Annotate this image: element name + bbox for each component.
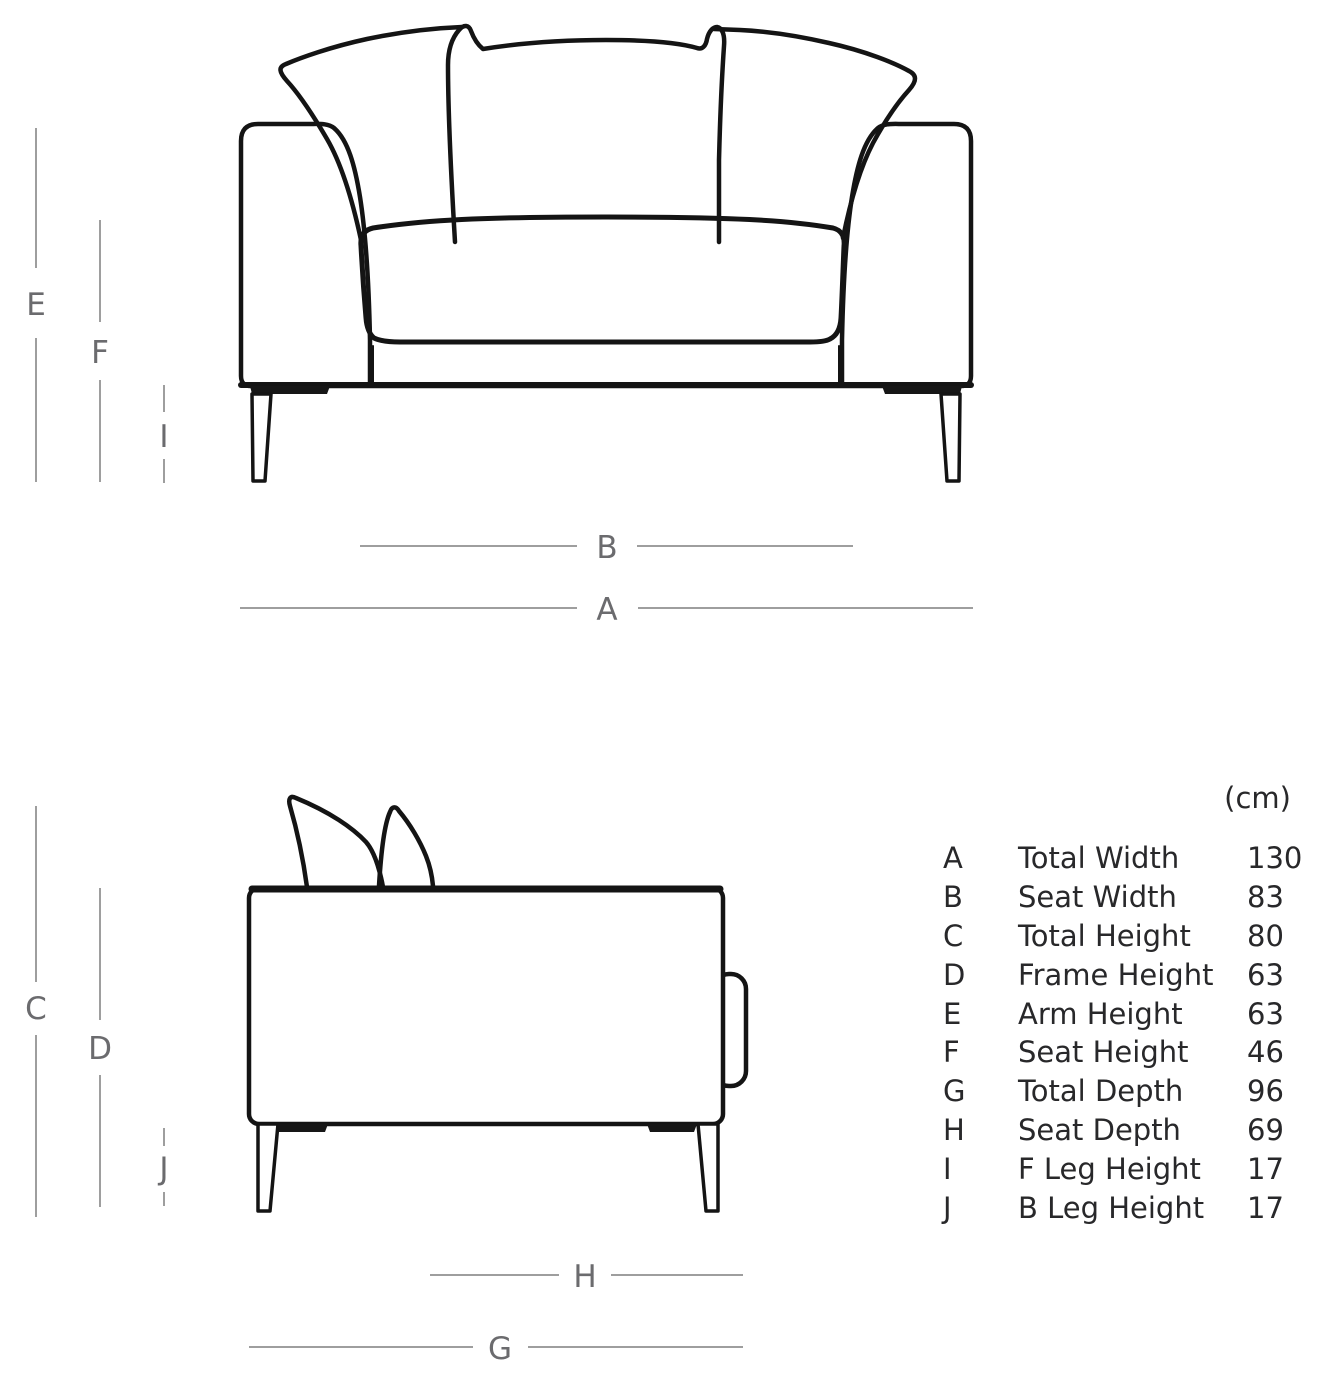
dimensions-table-rows: A Total Width 130 B Seat Width 83 C Tota… [943, 839, 1303, 1227]
row-key: E [943, 997, 1018, 1031]
row-label: Seat Height [1018, 1035, 1247, 1069]
front-view-drawing [241, 26, 971, 481]
row-key: J [943, 1191, 1018, 1225]
front-right-pillow [714, 29, 915, 238]
side-front-pillow [289, 797, 383, 887]
table-row: J B Leg Height 17 [943, 1188, 1303, 1227]
table-row: E Arm Height 63 [943, 994, 1303, 1033]
side-back-leg [698, 1124, 718, 1211]
front-right-leg [941, 394, 960, 481]
table-row: H Seat Depth 69 [943, 1111, 1303, 1150]
table-row: I F Leg Height 17 [943, 1149, 1303, 1188]
table-row: B Seat Width 83 [943, 878, 1303, 917]
row-key: A [943, 841, 1018, 875]
row-label: Seat Depth [1018, 1113, 1247, 1147]
front-seat-seams [373, 346, 839, 382]
sofa-dimensions-diagram: E F I B A C D J H G (cm) A Total Width 1… [0, 0, 1325, 1382]
row-value: 63 [1247, 958, 1303, 992]
row-value: 46 [1247, 1035, 1303, 1069]
front-center-pillow [448, 26, 724, 242]
row-label: Arm Height [1018, 997, 1247, 1031]
label-total-width: A [596, 592, 617, 628]
row-key: I [943, 1152, 1018, 1186]
table-row: G Total Depth 96 [943, 1072, 1303, 1111]
side-front-leg [258, 1124, 278, 1211]
table-row: A Total Width 130 [943, 839, 1303, 878]
table-row: F Seat Height 46 [943, 1033, 1303, 1072]
label-front-leg-height: I [159, 419, 168, 455]
row-label: Seat Width [1018, 880, 1247, 914]
row-value: 63 [1247, 997, 1303, 1031]
dimensions-table: (cm) A Total Width 130 B Seat Width 83 C… [943, 780, 1303, 1227]
label-total-height: C [25, 991, 47, 1027]
label-arm-height: E [26, 287, 46, 323]
row-value: 17 [1247, 1191, 1303, 1225]
row-key: H [943, 1113, 1018, 1147]
dimension-lines [36, 128, 973, 1347]
side-view-drawing [249, 797, 746, 1211]
row-value: 17 [1247, 1152, 1303, 1186]
front-frame [241, 124, 971, 386]
row-key: C [943, 919, 1018, 953]
unit-header: (cm) [943, 780, 1303, 816]
row-value: 69 [1247, 1113, 1303, 1147]
dimension-letters: E F I B A C D J H G [25, 287, 617, 1367]
row-label: Total Height [1018, 919, 1247, 953]
row-value: 83 [1247, 880, 1303, 914]
row-label: B Leg Height [1018, 1191, 1247, 1225]
label-seat-width: B [596, 530, 617, 566]
front-left-leg [252, 394, 271, 481]
row-key: G [943, 1074, 1018, 1108]
label-seat-depth: H [573, 1259, 596, 1295]
table-row: C Total Height 80 [943, 917, 1303, 956]
label-total-depth: G [488, 1331, 512, 1367]
label-back-leg-height: J [157, 1151, 168, 1187]
row-label: Frame Height [1018, 958, 1247, 992]
label-seat-height: F [91, 335, 109, 371]
row-label: F Leg Height [1018, 1152, 1247, 1186]
side-frame [249, 888, 723, 1124]
row-label: Total Width [1018, 841, 1247, 875]
row-value: 130 [1247, 841, 1303, 875]
side-rear-pillow [379, 807, 433, 886]
row-key: D [943, 958, 1018, 992]
front-seat-cushion [361, 217, 844, 342]
label-frame-height: D [88, 1031, 112, 1067]
row-key: F [943, 1035, 1018, 1069]
row-key: B [943, 880, 1018, 914]
row-value: 96 [1247, 1074, 1303, 1108]
row-label: Total Depth [1018, 1074, 1247, 1108]
table-row: D Frame Height 63 [943, 955, 1303, 994]
front-left-pillow [280, 27, 462, 240]
row-value: 80 [1247, 919, 1303, 953]
